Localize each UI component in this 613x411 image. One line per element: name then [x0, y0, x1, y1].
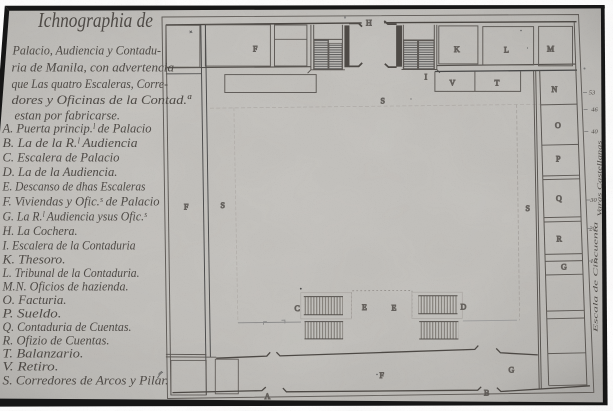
svg-text:Escala de Cincuenta: Escala de Cincuenta	[593, 222, 600, 334]
svg-text:E. Descanso de dhas Escaleras: E. Descanso de dhas Escaleras	[2, 179, 146, 194]
svg-text:G: G	[509, 366, 515, 375]
svg-text:A: A	[265, 392, 271, 401]
svg-text:S: S	[381, 97, 385, 106]
svg-text:ria de Manila, con advertencia: ria de Manila, con advertencia	[12, 60, 175, 75]
svg-text:S. Corredores de Arcos y Pilar: S. Corredores de Arcos y Pilar.	[3, 373, 169, 388]
svg-text:53: 53	[589, 90, 596, 97]
svg-text:H: H	[366, 19, 372, 28]
svg-text:S: S	[221, 201, 225, 210]
svg-text:R: R	[557, 235, 563, 244]
svg-text:G: G	[561, 263, 567, 272]
svg-text:dores y Oficinas de la Contad.: dores y Oficinas de la Contad.ª	[12, 92, 193, 107]
svg-text:D: D	[461, 303, 467, 312]
svg-text:V. Retiro.: V. Retiro.	[3, 359, 59, 374]
svg-text:C. Escalera de Palacio: C. Escalera de Palacio	[3, 150, 120, 165]
svg-text:N: N	[552, 85, 558, 94]
svg-text:40: 40	[591, 129, 598, 136]
svg-text:E: E	[392, 303, 397, 312]
svg-text:D. La de la Audiencia.: D. La de la Audiencia.	[2, 164, 118, 179]
svg-text:Varas Castellanas: Varas Castellanas	[597, 140, 604, 217]
svg-text:P: P	[556, 155, 561, 164]
svg-text:H. La Cochera.: H. La Cochera.	[2, 223, 78, 238]
svg-text:V: V	[450, 79, 456, 88]
svg-text:I: I	[425, 72, 428, 81]
svg-text:I. Escalera de la Contaduria: I. Escalera de la Contaduria	[2, 238, 136, 253]
svg-text:A. Puerta princip.ˡ de Palacio: A. Puerta princip.ˡ de Palacio	[2, 121, 152, 136]
svg-text:G. La R.ˡ Audiencia ysus Ofic.: G. La R.ˡ Audiencia ysus Ofic.ˢ	[3, 209, 148, 224]
svg-text:B: B	[484, 389, 489, 398]
svg-text:Palacio, Audiencia y Contadu-: Palacio, Audiencia y Contadu-	[12, 43, 161, 58]
svg-text:F. Viviendas y Ofic.ˢ de Palac: F. Viviendas y Ofic.ˢ de Palacio	[2, 194, 160, 209]
svg-text:K: K	[454, 45, 460, 54]
svg-text:46: 46	[591, 107, 598, 114]
svg-text:que Las quatro Escaleras, Corr: que Las quatro Escaleras, Corre-	[12, 76, 169, 91]
svg-text:C: C	[295, 304, 300, 313]
svg-text:L: L	[504, 46, 509, 55]
svg-text:T: T	[495, 79, 500, 88]
svg-text:F: F	[184, 203, 189, 212]
svg-text:Ichnographia de: Ichnographia de	[37, 8, 153, 32]
svg-text:F: F	[380, 371, 385, 380]
svg-text:F: F	[253, 45, 258, 54]
svg-text:Q: Q	[556, 194, 562, 203]
svg-text:B. La de la R.ˡ Audiencia: B. La de la R.ˡ Audiencia	[3, 135, 139, 150]
svg-text:S: S	[526, 204, 530, 213]
svg-text:O: O	[555, 121, 561, 130]
svg-text:E: E	[362, 303, 367, 312]
svg-text:M: M	[547, 45, 554, 54]
